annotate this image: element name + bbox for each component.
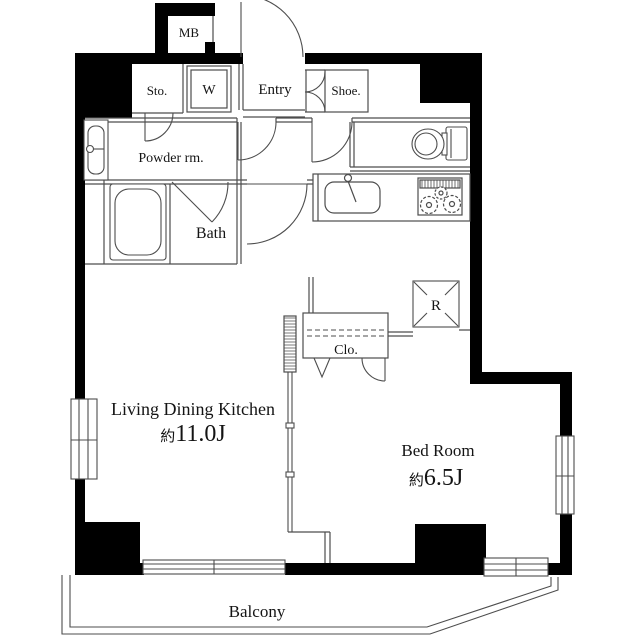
wall-bottom-pillar-right xyxy=(415,524,486,575)
bedroom-size-value: 6.5J xyxy=(424,465,463,491)
label-bath: Bath xyxy=(196,225,226,242)
storage-door xyxy=(145,113,173,141)
label-shoe: Shoe. xyxy=(331,83,360,98)
window-left xyxy=(71,399,97,479)
window-bottom-right xyxy=(484,558,548,576)
ldk-size-prefix: 約 xyxy=(160,428,175,445)
label-washer: W xyxy=(202,83,216,98)
entrance-door xyxy=(241,0,303,57)
kitchen-counter xyxy=(313,174,470,221)
label-bedroom-size: 約6.5J xyxy=(409,465,463,491)
window-right xyxy=(556,436,574,514)
wall-top-right-block xyxy=(420,53,482,103)
wall-top-b xyxy=(305,53,420,64)
label-powder-room: Powder rm. xyxy=(138,151,203,166)
wall-top-left-block xyxy=(75,53,132,118)
ldk-size-value: 11.0J xyxy=(175,421,225,447)
hall-door xyxy=(238,122,276,160)
washbasin xyxy=(84,120,108,180)
shoe-door-top xyxy=(305,72,325,92)
label-fridge: R xyxy=(431,298,441,314)
ldk-door xyxy=(247,184,307,244)
label-ldk: Living Dining Kitchen xyxy=(111,399,275,419)
toilet-door xyxy=(312,122,352,162)
sliding-partition xyxy=(286,361,294,532)
label-closet: Clo. xyxy=(334,343,358,358)
wall-right-upper xyxy=(470,103,482,375)
floor-plan-page: MB Sto. W Entry Shoe. Powder rm. Bath Cl… xyxy=(0,0,640,639)
bath-door xyxy=(172,182,228,222)
label-entry: Entry xyxy=(258,82,292,98)
wall-right-lower-a xyxy=(560,384,572,438)
wall-top-a xyxy=(132,53,243,64)
label-balcony: Balcony xyxy=(229,602,286,621)
wall-right-step xyxy=(470,372,572,384)
label-ldk-size: 約11.0J xyxy=(160,421,225,447)
wall-bottom-pillar-left xyxy=(75,522,140,575)
windows xyxy=(71,399,574,576)
closet-swing-door xyxy=(362,358,385,381)
label-bedroom: Bed Room xyxy=(401,441,474,460)
bedroom-size-prefix: 約 xyxy=(409,472,424,489)
toilet xyxy=(412,127,467,160)
floor-plan-drawing: MB Sto. W Entry Shoe. Powder rm. Bath Cl… xyxy=(0,0,640,639)
bathtub xyxy=(110,184,166,260)
window-balcony-slider xyxy=(143,560,285,574)
stove xyxy=(418,178,462,215)
balcony-outline xyxy=(62,575,558,634)
label-mb: MB xyxy=(179,25,200,40)
wall-left-lower xyxy=(75,478,85,522)
shoe-door-bottom xyxy=(305,92,325,112)
closet-accordion-door xyxy=(284,316,296,372)
wall-bottom-right xyxy=(546,563,572,575)
wall-bottom-center xyxy=(285,563,415,575)
label-storage: Sto. xyxy=(147,83,168,98)
bedroom-fold-door xyxy=(314,358,330,377)
